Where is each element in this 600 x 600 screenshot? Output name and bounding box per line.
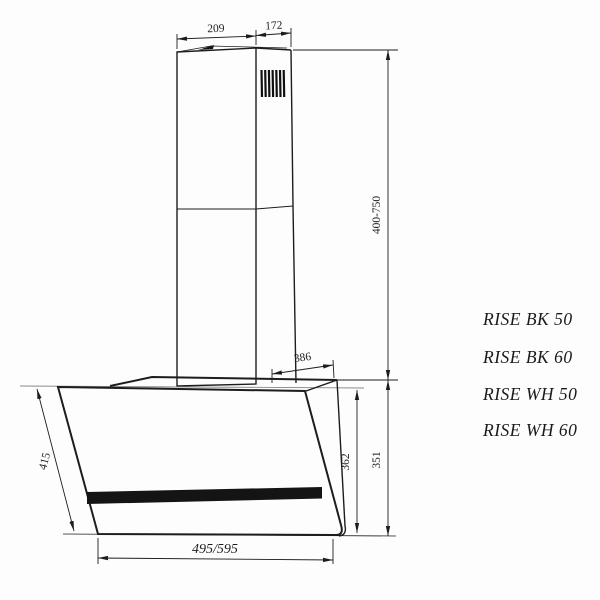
- model-list: RISE BK 50 RISE BK 60 RISE WH 50 RISE WH…: [482, 309, 577, 440]
- grille-bar: [269, 70, 270, 97]
- dimension-line: [272, 365, 333, 374]
- grille-bar: [284, 70, 285, 97]
- dim-glass-length: 415: [37, 389, 74, 531]
- dimension-line: [98, 558, 333, 560]
- dim-body-width-label: 495/595: [192, 542, 238, 557]
- dim-body-height-label: 351: [371, 451, 383, 469]
- diagram-canvas: 209 172 400-750 351 362 386 415 495/595: [0, 0, 600, 600]
- dim-glass-height-label: 362: [340, 453, 352, 471]
- dim-chimney-height-range: 400-750: [293, 50, 398, 380]
- dim-chimney-height-range-label: 400-750: [371, 196, 383, 235]
- top-panel-right-edge: [306, 380, 337, 391]
- dim-body-width: 495/595: [98, 538, 333, 564]
- dim-body-height: 351: [371, 380, 388, 536]
- dim-chimney-width-label: 209: [207, 23, 225, 36]
- dim-glass-height: 362: [340, 390, 357, 533]
- dimension-line: [256, 33, 291, 36]
- model-name: RISE BK 50: [482, 309, 573, 329]
- chimney-side-right-edge-upper: [291, 50, 293, 206]
- dim-glass-length-label: 415: [37, 451, 53, 471]
- grille-bar: [265, 70, 266, 97]
- chimney-telescopic-joint: [177, 206, 293, 209]
- dim-chimney-depth: 172: [256, 20, 291, 47]
- grille-bar: [280, 70, 281, 97]
- dim-chimney-depth-label: 172: [265, 20, 283, 33]
- grille-bar: [276, 70, 277, 97]
- dimension-line: [177, 36, 256, 39]
- vent-grille: [262, 70, 285, 97]
- chimney-front-face: [177, 48, 256, 386]
- model-name: RISE WH 60: [482, 420, 577, 440]
- glass-panel: [58, 387, 342, 535]
- dim-chimney-width: 209: [177, 23, 256, 49]
- model-name: RISE WH 50: [482, 384, 577, 404]
- grille-bar: [262, 70, 263, 97]
- grille-bar: [273, 70, 274, 97]
- hood-dimension-drawing: 209 172 400-750 351 362 386 415 495/595: [0, 0, 600, 600]
- model-name: RISE BK 60: [482, 347, 573, 367]
- black-trim-band: [87, 487, 322, 504]
- chimney: [177, 45, 296, 386]
- dim-top-depth-label: 386: [293, 351, 312, 365]
